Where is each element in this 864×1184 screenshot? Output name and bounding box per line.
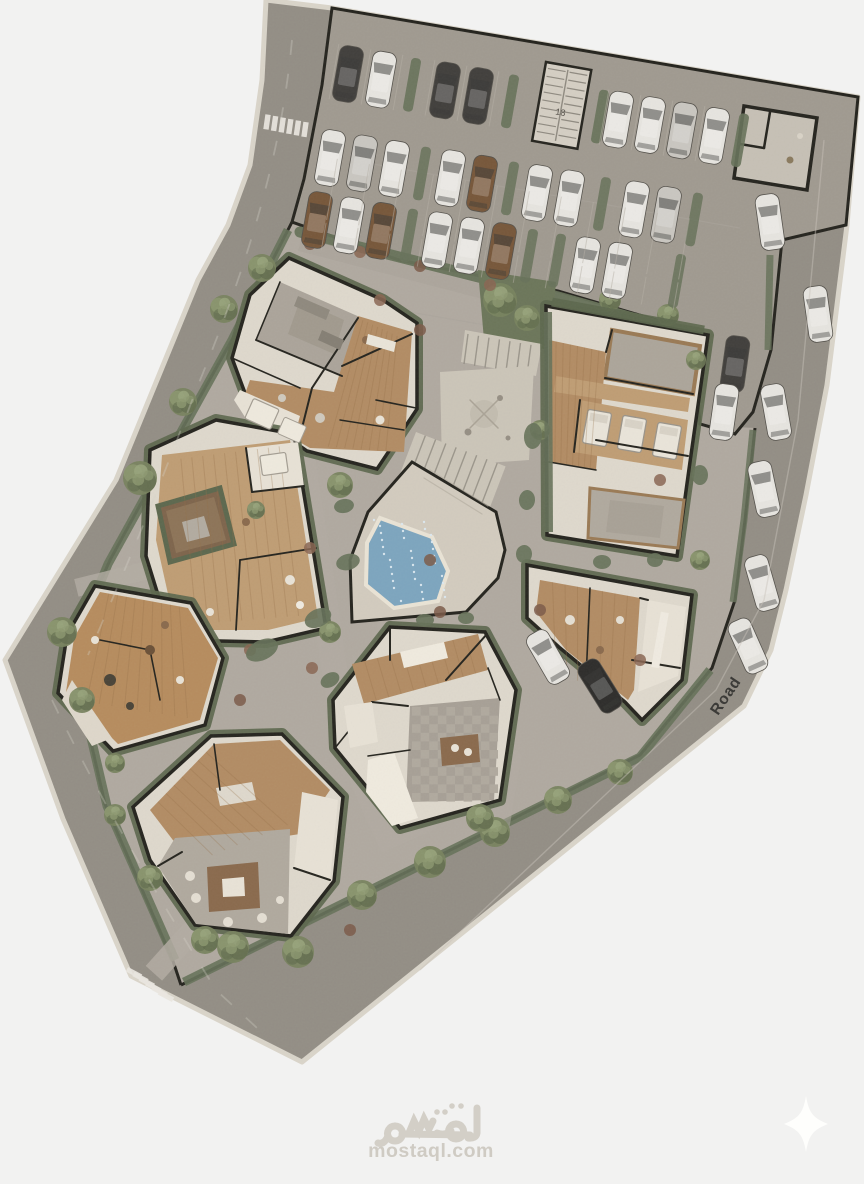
svg-text:mostaql.com: mostaql.com [368, 1140, 494, 1162]
